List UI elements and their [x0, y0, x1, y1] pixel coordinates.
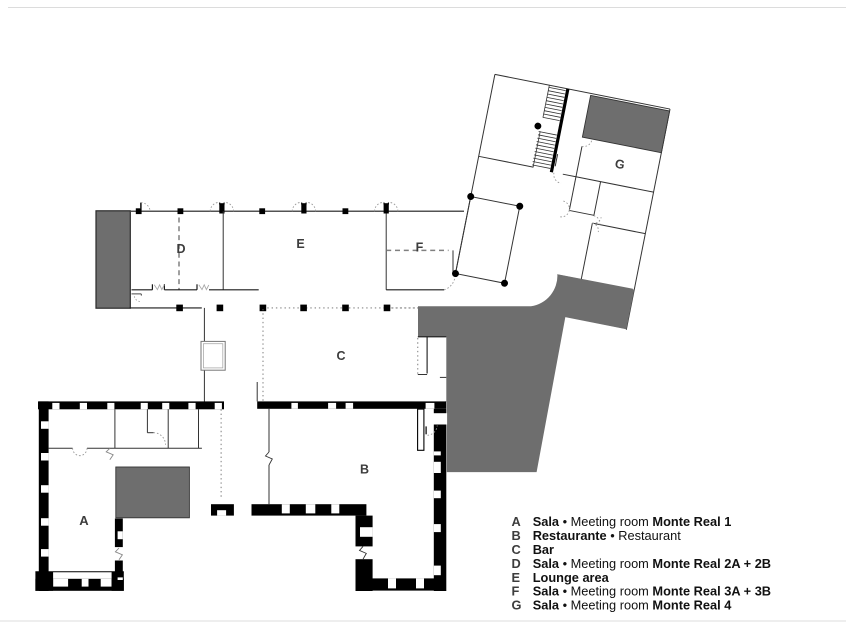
- svg-text:D: D: [512, 556, 521, 571]
- svg-text:Lounge area: Lounge area: [533, 570, 610, 585]
- svg-text:C: C: [336, 349, 345, 363]
- svg-text:B: B: [512, 528, 521, 543]
- svg-text:Sala • Meeting room Monte Real: Sala • Meeting room Monte Real 3A + 3B: [533, 584, 771, 599]
- svg-text:E: E: [296, 237, 304, 251]
- svg-text:A: A: [512, 514, 521, 529]
- svg-text:A: A: [79, 513, 89, 528]
- svg-text:F: F: [416, 241, 424, 255]
- svg-text:Sala • Meeting room Monte Real: Sala • Meeting room Monte Real 1: [533, 514, 732, 529]
- svg-text:D: D: [176, 242, 185, 256]
- svg-text:B: B: [360, 463, 369, 477]
- svg-text:Bar: Bar: [533, 542, 554, 557]
- svg-text:Sala • Meeting room Monte Real: Sala • Meeting room Monte Real 4: [533, 598, 733, 613]
- svg-text:E: E: [512, 570, 521, 585]
- svg-text:C: C: [512, 542, 521, 557]
- svg-text:Restaurante • Restaurant: Restaurante • Restaurant: [533, 528, 682, 543]
- svg-text:G: G: [512, 598, 522, 613]
- svg-text:Sala • Meeting room Monte Real: Sala • Meeting room Monte Real 2A + 2B: [533, 556, 771, 571]
- svg-text:F: F: [512, 584, 520, 599]
